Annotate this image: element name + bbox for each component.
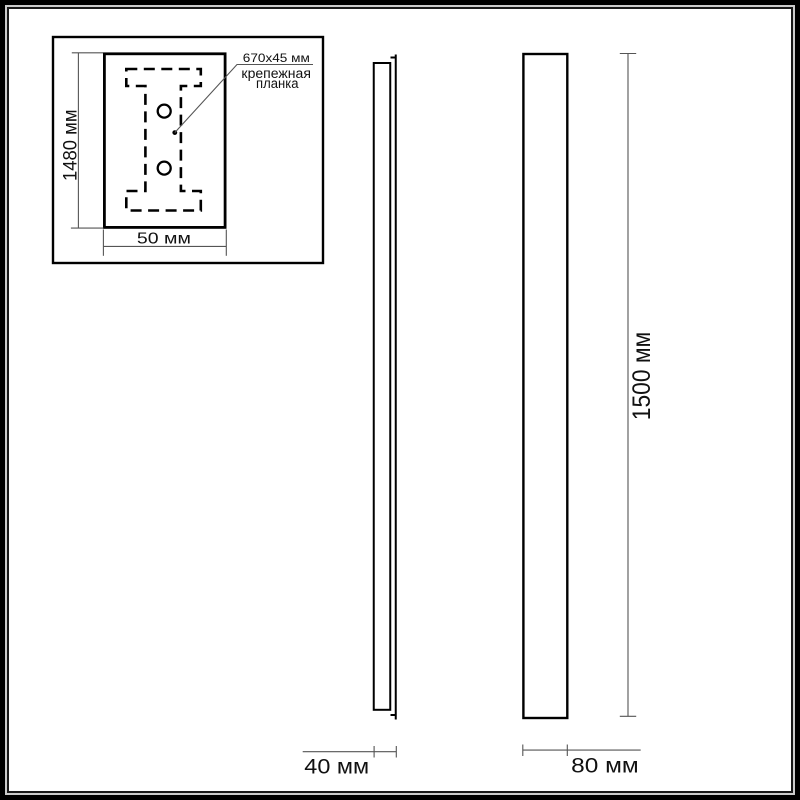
svg-text:40 мм: 40 мм	[304, 755, 369, 778]
svg-text:1480 мм: 1480 мм	[59, 109, 81, 181]
svg-text:1500 мм: 1500 мм	[628, 332, 656, 421]
svg-text:планка: планка	[256, 76, 299, 91]
svg-text:670x45 мм: 670x45 мм	[243, 51, 310, 65]
svg-text:50 мм: 50 мм	[137, 231, 191, 248]
svg-text:80 мм: 80 мм	[571, 755, 639, 778]
